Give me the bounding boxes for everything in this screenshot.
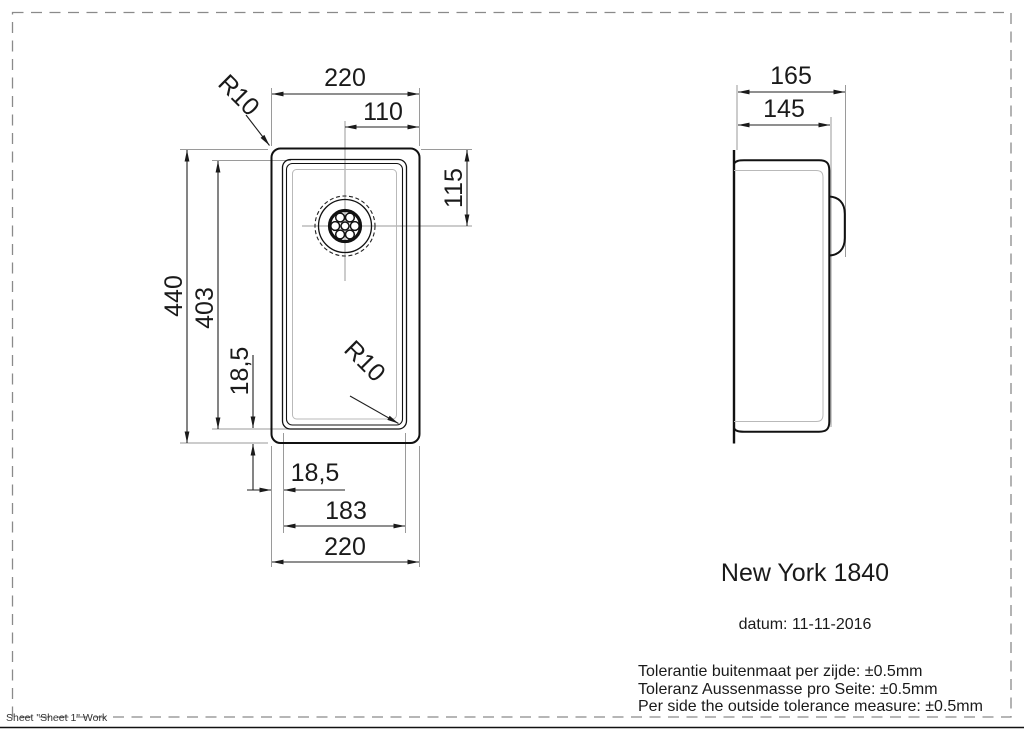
drawing-date: datum: 11-11-2016 [739, 616, 872, 633]
radius-label-outer: R10 [213, 69, 265, 121]
sink-side-profile [734, 160, 829, 431]
strainer-hole [346, 213, 355, 222]
technical-drawing: 220 110 R10 R10 115 440 403 18,5 18,5 18… [0, 0, 1024, 730]
dim-label-drain-from-top: 115 [440, 168, 468, 208]
strainer-hole [350, 222, 359, 231]
product-title: New York 1840 [721, 559, 889, 587]
strainer-hole [346, 230, 355, 239]
dim-label-width-top: 220 [324, 64, 366, 92]
dim-label-width-inner: 183 [325, 497, 367, 525]
sink-side-inner-surface [734, 171, 823, 422]
dim-label-depth-outer: 165 [770, 62, 812, 90]
strainer-hole [331, 222, 340, 231]
dim-label-height-inner: 403 [191, 287, 219, 329]
drain-strainer-holes [331, 213, 359, 239]
radius-label-inner: R10 [339, 335, 391, 387]
dim-label-width-bottom: 220 [324, 533, 366, 561]
drain-outlet-profile [829, 197, 845, 256]
dim-label-rim-left: 18,5 [226, 347, 254, 396]
dimension-lines-top-view [187, 94, 467, 562]
drawing-sheet: 220 110 R10 R10 115 440 403 18,5 18,5 18… [0, 0, 1024, 730]
side-view: 165 145 [734, 62, 846, 444]
strainer-hole [336, 213, 345, 222]
dim-label-height-outer: 440 [160, 275, 188, 317]
strainer-center-hole [341, 222, 349, 230]
tolerance-line-en: Per side the outside tolerance measure: … [638, 698, 983, 715]
sheet-dashed-border [13, 13, 1012, 718]
strainer-hole [336, 230, 345, 239]
dim-label-drain-offset: 110 [363, 98, 403, 126]
title-block: New York 1840 datum: 11-11-2016 Tolerant… [638, 559, 983, 715]
tolerance-line-de: Toleranz Aussenmasse pro Seite: ±0.5mm [638, 681, 938, 698]
dim-label-depth-inner: 145 [763, 95, 805, 123]
tolerance-line-nl: Tolerantie buitenmaat per zijde: ±0.5mm [638, 663, 922, 680]
dim-label-rim-bottom: 18,5 [291, 459, 340, 487]
top-view: 220 110 R10 R10 115 440 403 18,5 18,5 18… [160, 64, 472, 567]
radius-leader-outer [246, 115, 270, 146]
sheet-name-label: Sheet "Sheet 1" Work [6, 712, 108, 724]
